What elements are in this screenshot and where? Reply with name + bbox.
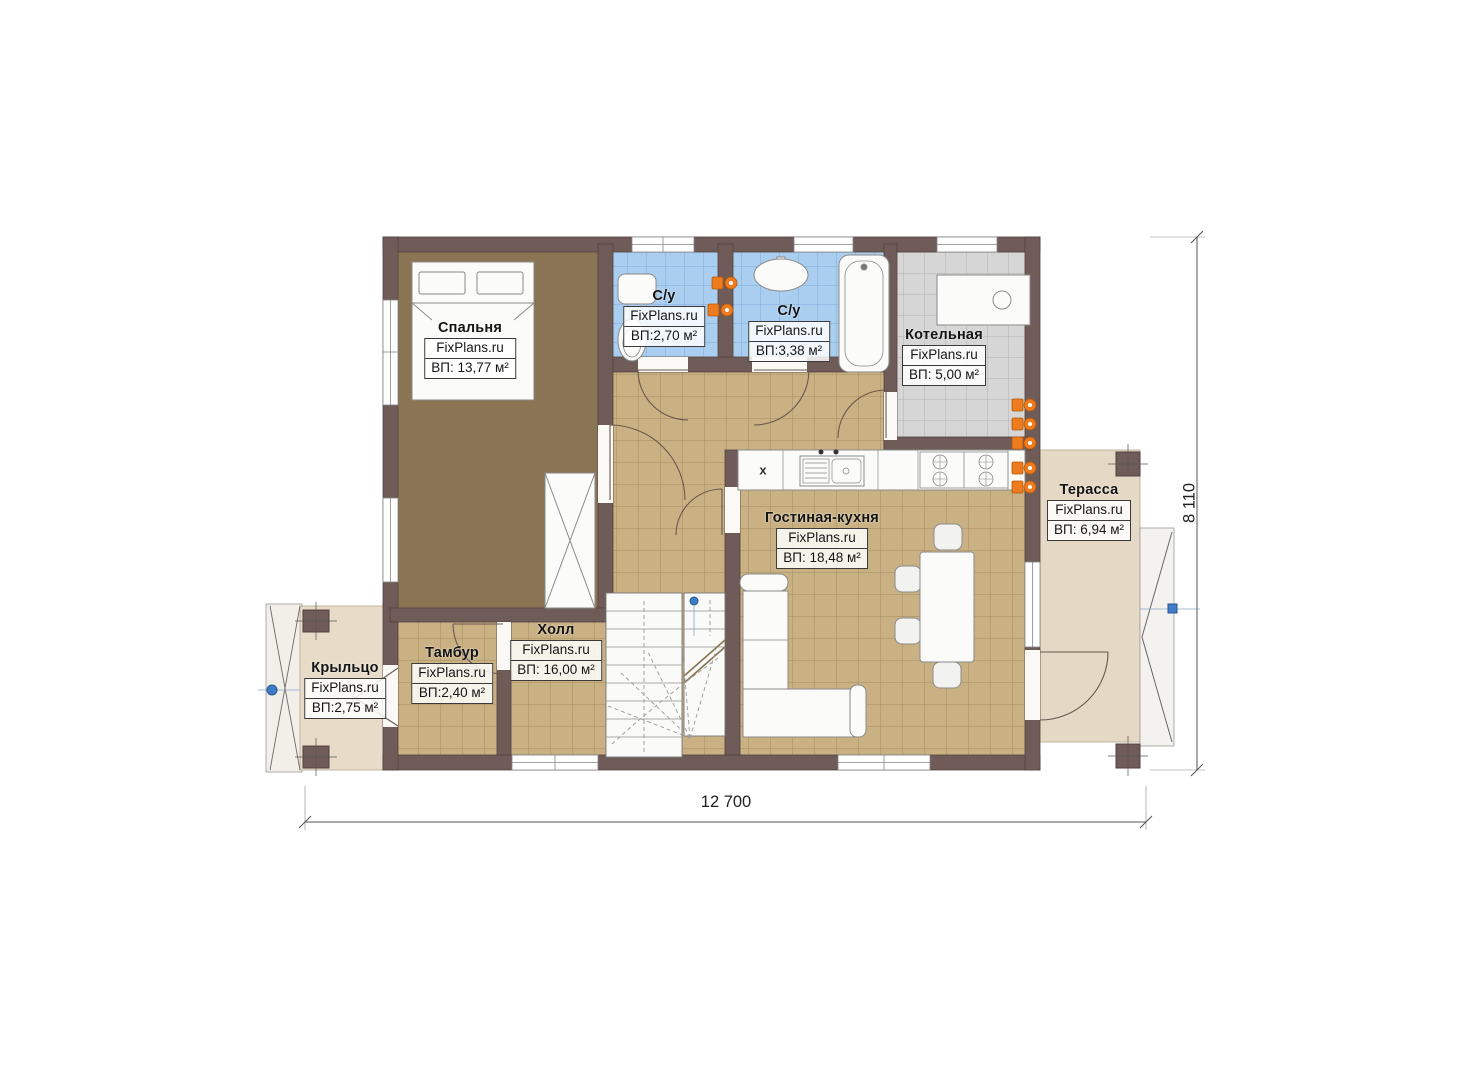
floor-plan-drawing [0,0,1474,1080]
terrace-steps [1140,528,1174,746]
wall-bedroom-vestibule [390,608,606,622]
room-name: С/у [748,303,830,319]
staircase [606,593,725,757]
sofa-armrest [740,574,788,591]
sofa-armrest [850,685,866,737]
room-area: ВП:2,70 м² [624,326,704,346]
wall-boiler-bottom [884,437,1032,450]
dining-table [920,552,974,662]
pillow [419,272,465,294]
room-name: Холл [510,622,602,638]
living-door-opening [725,487,740,533]
room-name: Спальня [424,320,516,336]
room-area: ВП:3,38 м² [749,341,829,361]
pillow [477,272,523,294]
room-label-terrace: Терасса FixPlans.ru ВП: 6,94 м² [1047,482,1131,541]
room-area: ВП: 6,94 м² [1048,520,1130,540]
brand-watermark: FixPlans.ru [777,529,867,548]
brand-watermark: FixPlans.ru [412,664,492,683]
room-label-boiler-room: Котельная FixPlans.ru ВП: 5,00 м² [902,327,986,386]
room-name: Котельная [902,327,986,343]
window [794,237,853,252]
level-marker [267,685,277,695]
room-name: Тамбур [411,645,493,661]
boiler-unit [937,275,1030,325]
room-area: ВП: 13,77 м² [425,358,515,378]
terrace-door-opening [1025,650,1040,720]
room-name: Крыльцо [304,660,386,676]
wall-bathroom-divider [718,244,733,357]
vestibule-door-opening [497,622,511,670]
window [937,237,997,252]
wall-outer-bottom [383,755,1040,770]
window [1025,562,1040,647]
level-marker [690,597,698,605]
chair [934,524,962,550]
room-label-living-kitchen: Гостиная-кухня FixPlans.ru ВП: 18,48 м² [765,510,879,569]
room-label-bedroom: Спальня FixPlans.ru ВП: 13,77 м² [424,320,516,379]
brand-watermark: FixPlans.ru [511,641,601,660]
room-area: ВП: 16,00 м² [511,660,601,680]
sink [754,259,808,291]
window [632,237,694,252]
room-name: Терасса [1047,482,1131,498]
room-label-bathroom-1: С/у FixPlans.ru ВП:2,70 м² [623,288,705,347]
brand-watermark: FixPlans.ru [749,322,829,341]
bathtub [839,255,889,372]
room-label-vestibule: Тамбур FixPlans.ru ВП:2,40 м² [411,645,493,704]
window [383,300,398,405]
room-area: ВП:2,75 м² [305,698,385,718]
room-label-bathroom-2: С/у FixPlans.ru ВП:3,38 м² [748,303,830,362]
chair [895,566,921,592]
room-area: ВП:2,40 м² [412,683,492,703]
brand-watermark: FixPlans.ru [1048,501,1130,520]
brand-watermark: FixPlans.ru [305,679,385,698]
chair [933,662,961,688]
dimension-width: 12 700 [701,793,751,812]
room-name: Гостиная-кухня [765,510,879,526]
dimension-height: 8 110 [1181,483,1200,523]
brand-watermark: FixPlans.ru [624,307,704,326]
room-area: ВП: 18,48 м² [777,548,867,568]
wardrobe [545,473,595,608]
brand-watermark: FixPlans.ru [903,346,985,365]
room-name: С/у [623,288,705,304]
kitchen-counter [738,450,1025,491]
window [383,498,398,582]
room-area: ВП: 5,00 м² [903,365,985,385]
window [512,755,598,770]
bedroom-door-opening [598,425,613,503]
room-label-hall: Холл FixPlans.ru ВП: 16,00 м² [510,622,602,681]
room-label-porch: Крыльцо FixPlans.ru ВП:2,75 м² [304,660,386,719]
fridge-symbol: x [759,463,766,478]
floor-plan-page: Спальня FixPlans.ru ВП: 13,77 м² С/у Fix… [0,0,1474,1080]
chair [895,618,921,644]
level-marker [1168,604,1177,613]
bathtub-tap [861,264,867,270]
window [838,755,930,770]
brand-watermark: FixPlans.ru [425,339,515,358]
